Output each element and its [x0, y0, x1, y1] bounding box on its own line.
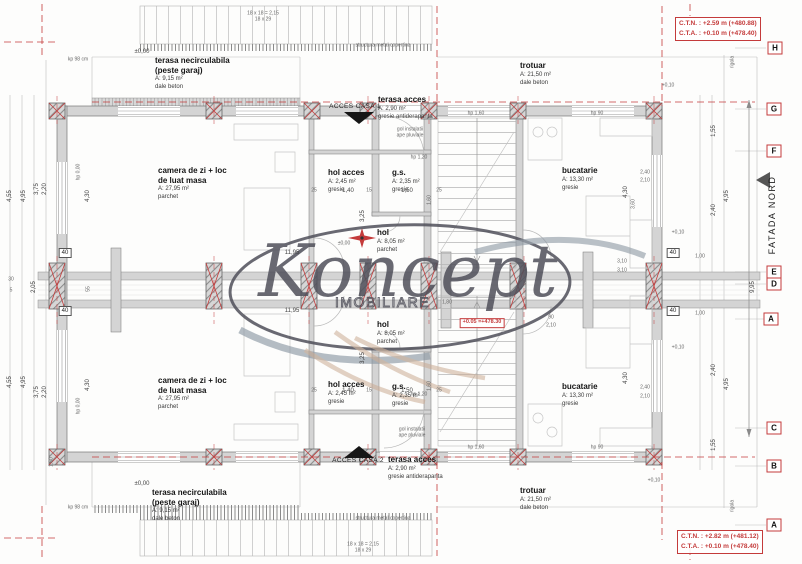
watermark-subtitle: IMOBILIARE: [335, 294, 430, 310]
level-annotation-center: +0.05 =+478.30: [460, 318, 505, 328]
facade-nord-label: FATADA NORD: [767, 176, 777, 255]
edge-hatch-band-bottom: [140, 513, 432, 520]
level-annotation-bottom-right: C.T.N. : +2.82 m (+481.12) C.T.A. : +0.1…: [677, 530, 763, 554]
ctn-value: C.T.N. : +2.59 m (+480.88): [679, 19, 757, 29]
cta-value: C.T.A. : +0.10 m (+478.40): [679, 29, 757, 39]
floor-plan-linework: Koncept IMOBILIARE: [0, 0, 802, 564]
floor-plan-sheet: Koncept IMOBILIARE terasa necirculabila(…: [0, 0, 802, 564]
level-annotation-top-right: C.T.N. : +2.59 m (+480.88) C.T.A. : +0.1…: [675, 17, 761, 41]
cta-value: C.T.A. : +0.10 m (+478.40): [681, 542, 759, 552]
watermark: Koncept IMOBILIARE: [228, 219, 645, 402]
ctn-value: C.T.N. : +2.82 m (+481.12): [681, 532, 759, 542]
terrace-slab-bottom: [92, 505, 300, 513]
right-dimension-arrow: [747, 100, 752, 437]
edge-hatch-band-top: [140, 44, 432, 51]
roof-structure-grid-top: [140, 6, 432, 44]
roof-structure-grid-bottom: [140, 520, 432, 556]
